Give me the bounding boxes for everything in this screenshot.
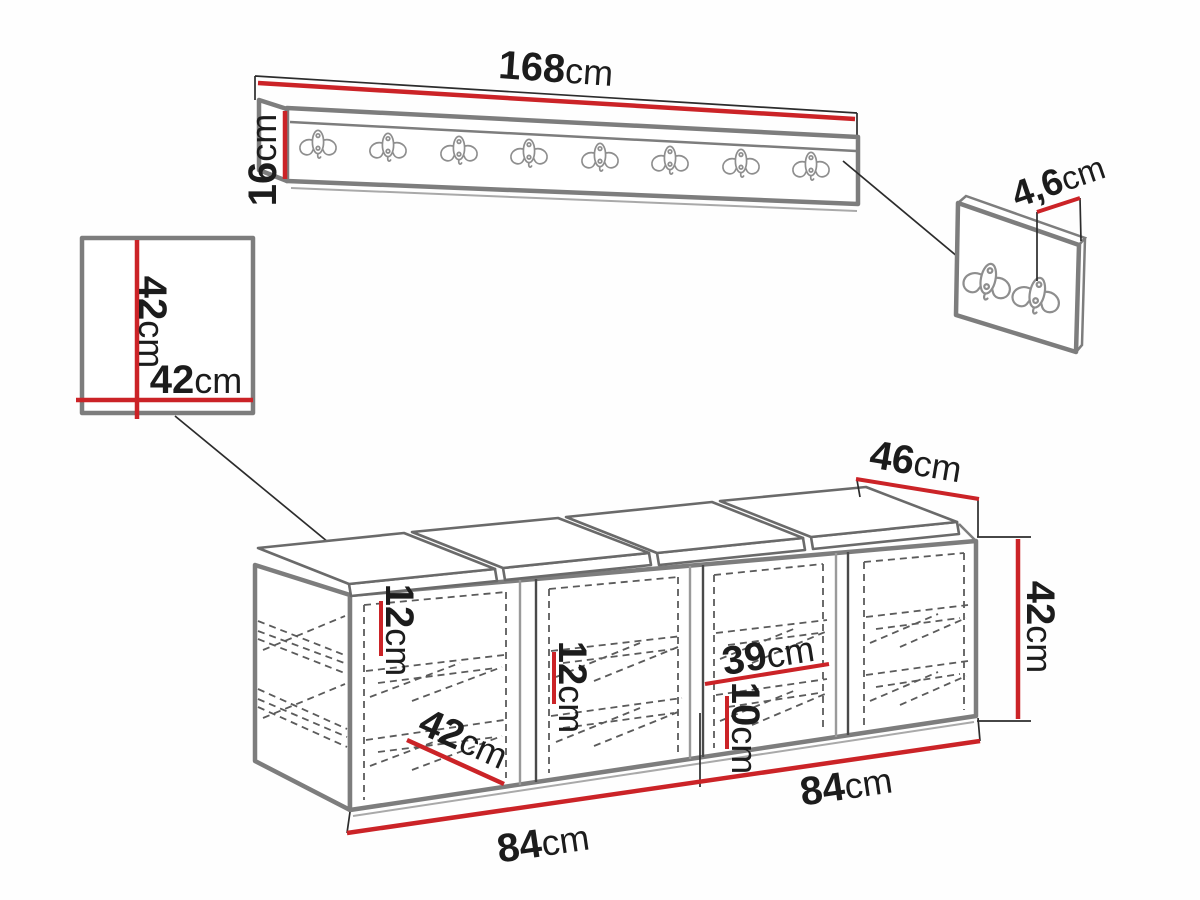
mirror-width-dimension: 42cm [150,358,243,402]
dimension-diagram: 168cm 16cm 42cm 42cm 4,6cm [0,0,1200,900]
cushion-to-cabinet-step [959,524,976,541]
hook-panel: 4,6cm [956,146,1110,352]
coat-rack: 168cm 16cm [241,43,958,257]
rack-height-dimension: 16cm [241,114,285,207]
shelf-gap-2-dimension: 12cm [550,641,594,734]
mirror-panel: 42cm 42cm [76,238,345,556]
rack-width-dimension: 168cm [497,43,615,95]
shoe-bench: 46cm 42cm 12cm 12cm 39cm 10cm 42cm 84cm … [255,433,1062,872]
rack-to-hookpanel-pointer-line [843,161,958,257]
bench-height-dimension: 42cm [1018,581,1062,674]
bottom-shelf-gap-dimension: 10cm [723,682,767,775]
mirror-to-bench-pointer-line [175,416,345,556]
mirror-height-dimension: 42cm [130,276,174,369]
shelf-gap-1-dimension: 12cm [377,584,421,677]
bench-width-left-dimension: 84cm [494,814,592,871]
diagram-canvas: 168cm 16cm 42cm 42cm 4,6cm [0,0,1200,900]
hook-panel-front-face [956,203,1079,352]
